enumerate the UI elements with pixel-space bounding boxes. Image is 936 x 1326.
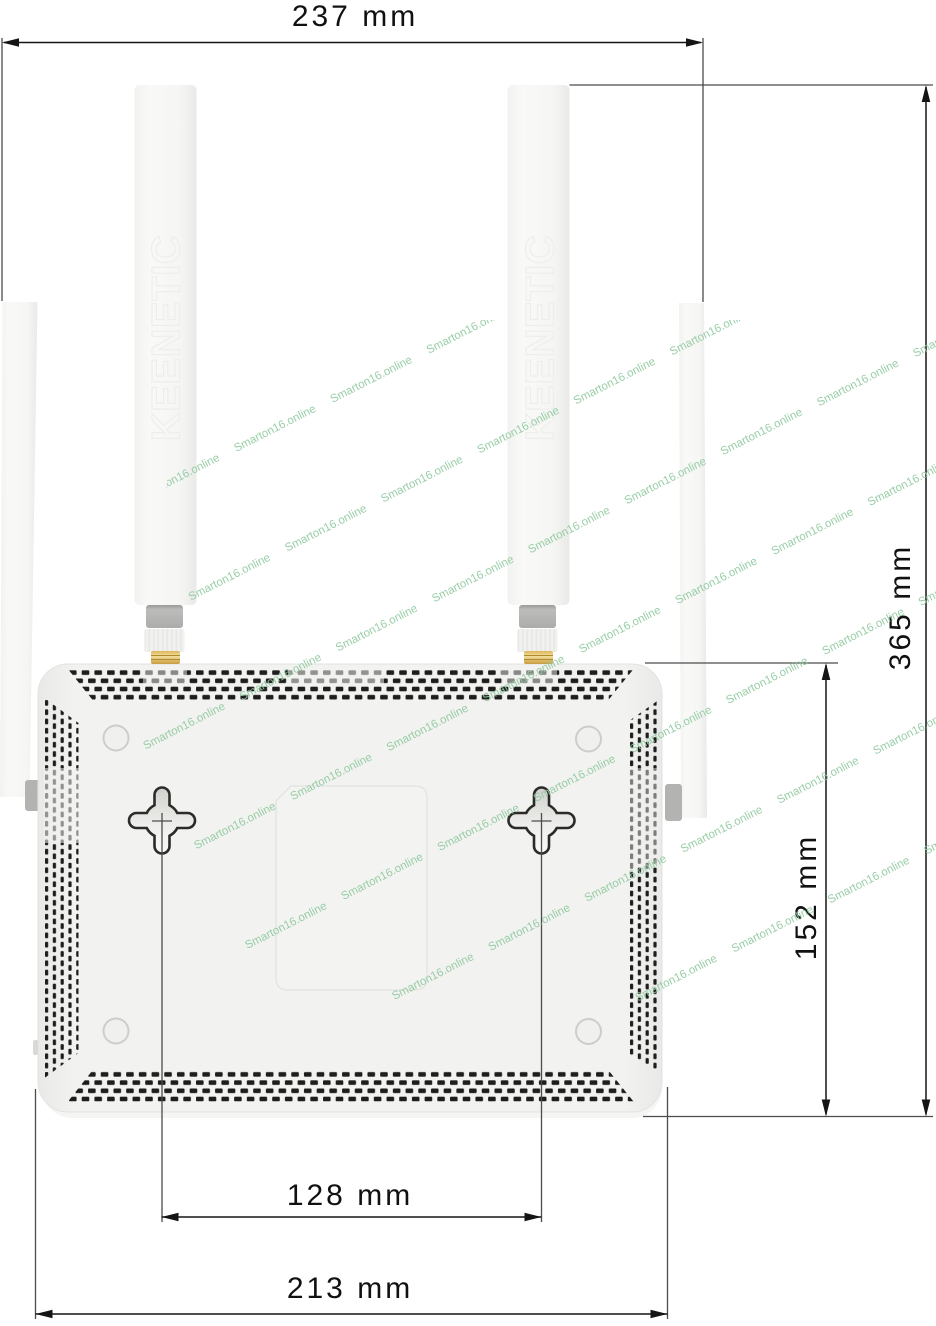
svg-text:237 mm: 237 mm <box>292 0 418 33</box>
svg-text:128 mm: 128 mm <box>287 1179 413 1212</box>
svg-text:KEENETIC: KEENETIC <box>145 235 189 441</box>
svg-text:213 mm: 213 mm <box>287 1272 413 1305</box>
svg-text:152 mm: 152 mm <box>790 834 823 960</box>
